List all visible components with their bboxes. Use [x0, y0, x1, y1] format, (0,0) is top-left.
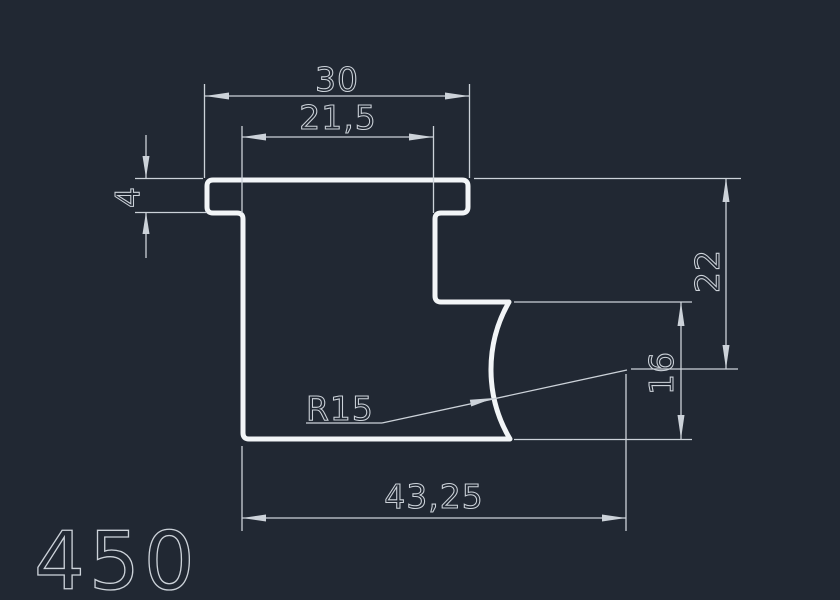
dim-value-flange-thickness: 4	[108, 186, 147, 208]
arrow-right-icon	[602, 515, 626, 522]
dim-value-top-inner-width: 21,5	[299, 98, 376, 137]
dim-bottom-width: 43,25	[242, 374, 626, 531]
arrow-up-icon	[723, 178, 730, 202]
arrow-down-icon	[143, 156, 150, 178]
arrow-up-icon	[678, 302, 685, 326]
arrow-down-icon	[723, 345, 730, 369]
dim-fillet-radius: R15	[306, 370, 627, 428]
arrow-left-icon	[242, 134, 266, 141]
dim-value-fillet-radius: R15	[306, 389, 374, 428]
arrow-up-icon	[143, 212, 150, 234]
arrow-left-icon	[242, 515, 266, 522]
dim-height-step: 16	[514, 302, 692, 440]
arrow-left-icon	[205, 93, 229, 100]
dim-value-bottom-width: 43,25	[384, 477, 483, 516]
dim-value-height-right: 22	[688, 249, 727, 293]
cad-drawing: 30 21,5 4 22	[0, 0, 840, 600]
dim-flange-thickness: 4	[108, 135, 207, 258]
dim-height-right: 22	[474, 178, 741, 369]
arrow-down-icon	[678, 415, 685, 439]
arrow-leader-icon	[470, 398, 494, 407]
arrow-right-icon	[409, 134, 433, 141]
part-number-label: 450	[34, 515, 199, 600]
leader-line	[382, 370, 627, 423]
dim-top-inner-width: 21,5	[242, 98, 434, 213]
cad-canvas: 30 21,5 4 22	[0, 0, 840, 600]
dim-value-top-width: 30	[315, 60, 359, 99]
arrow-right-icon	[445, 93, 469, 100]
dim-value-height-step: 16	[642, 351, 681, 395]
